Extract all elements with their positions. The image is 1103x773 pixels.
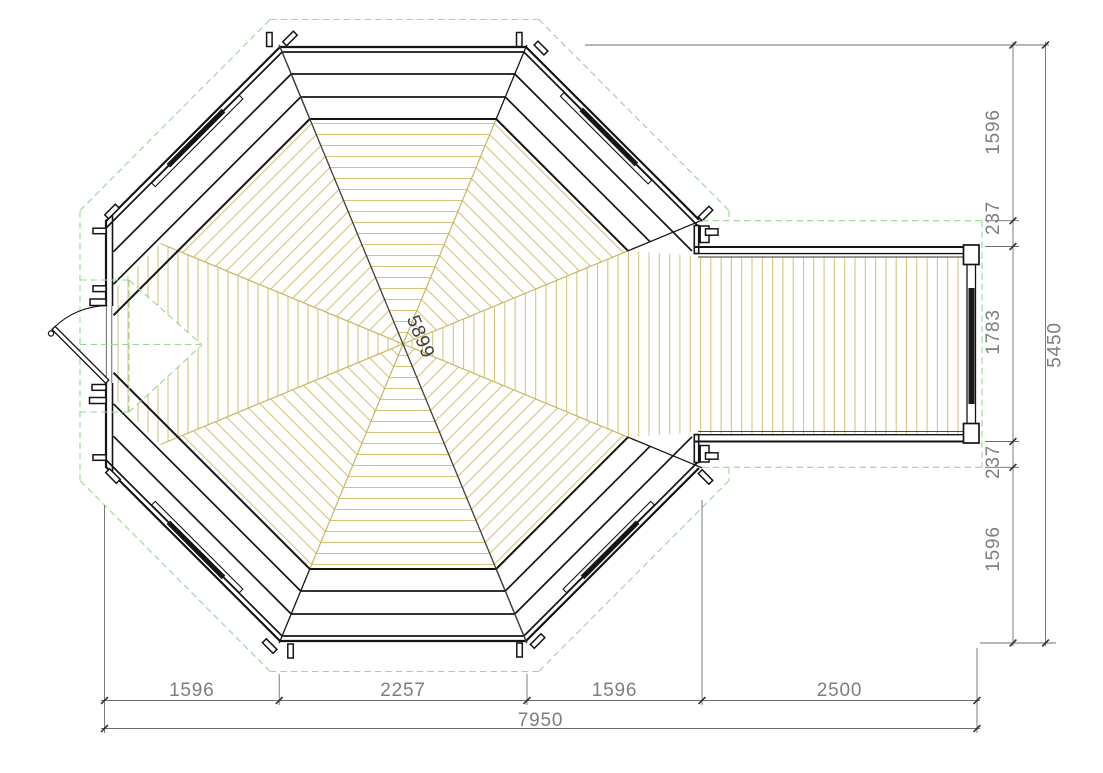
svg-text:1596: 1596	[169, 680, 214, 701]
svg-text:5450: 5450	[1045, 322, 1066, 367]
svg-text:1596: 1596	[983, 526, 1004, 571]
svg-text:2257: 2257	[380, 680, 425, 701]
svg-text:1596: 1596	[983, 109, 1004, 154]
svg-text:1596: 1596	[592, 680, 637, 701]
svg-text:1783: 1783	[983, 309, 1004, 354]
svg-text:2500: 2500	[817, 680, 862, 701]
svg-text:7950: 7950	[518, 710, 563, 731]
svg-text:237: 237	[983, 201, 1004, 235]
svg-text:237: 237	[983, 445, 1004, 479]
